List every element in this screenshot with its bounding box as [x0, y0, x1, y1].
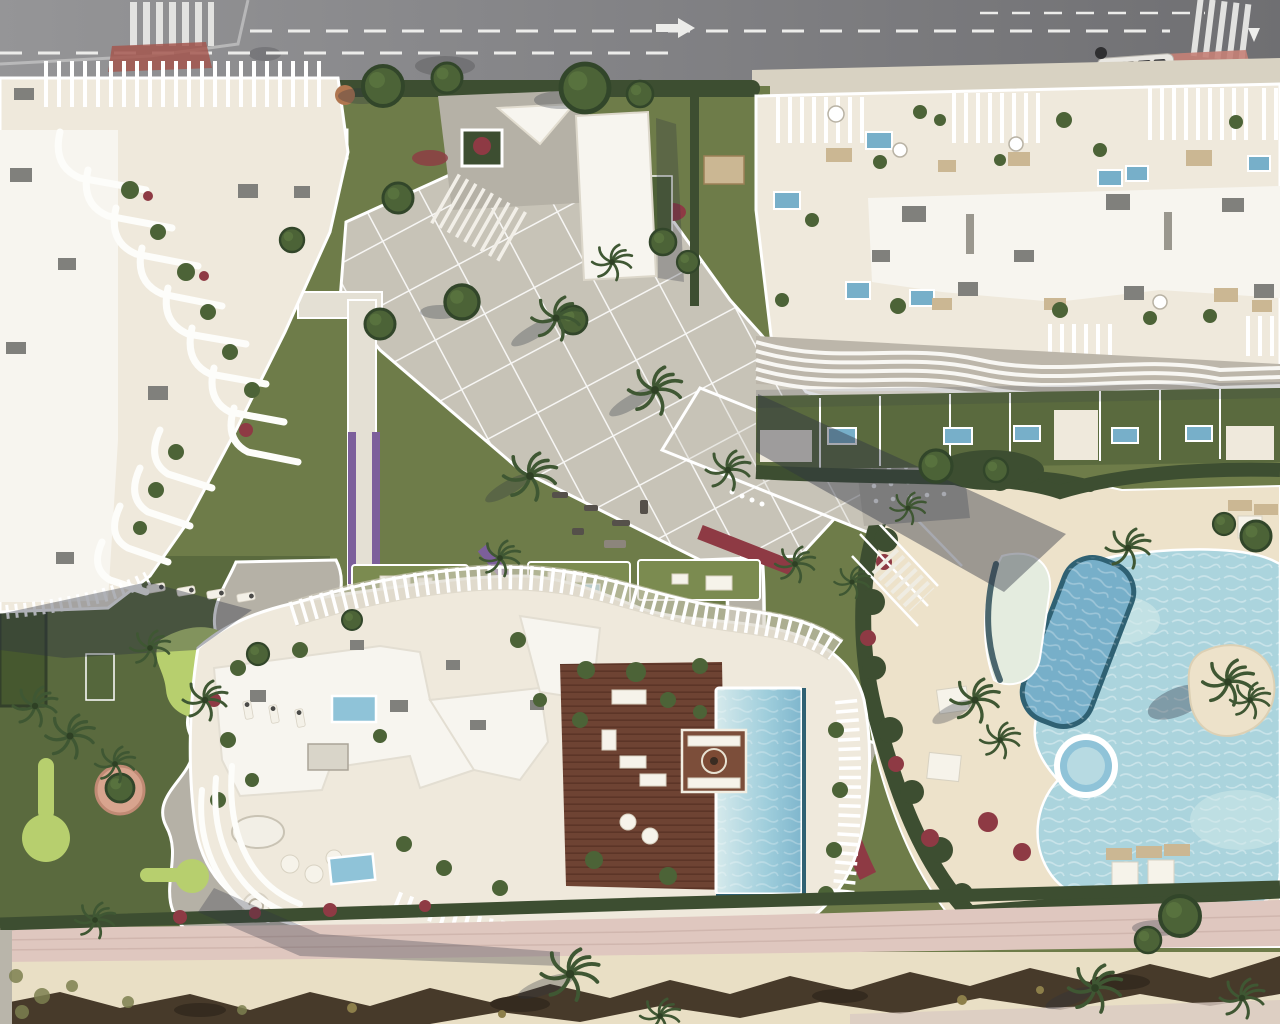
cabana [927, 752, 962, 781]
terrace-plunge-pool [329, 854, 375, 884]
garden-storage [86, 654, 114, 700]
scene-svg [0, 0, 1280, 1024]
pedestrian [1095, 47, 1107, 59]
round-chair [305, 865, 323, 883]
putting-green-circle [22, 814, 70, 862]
hedge-divider [690, 96, 699, 306]
garden-patio [1054, 410, 1098, 460]
jacuzzi-water [1067, 747, 1105, 785]
long-wood-table [704, 156, 744, 184]
putting-green-stem [38, 758, 54, 820]
garden-patio [1226, 426, 1274, 460]
palm-island [1189, 645, 1275, 736]
left-flat-roof [0, 130, 118, 602]
terrace-plunge-pool [332, 696, 376, 722]
aerial-render [0, 0, 1280, 1024]
round-chair [281, 855, 299, 873]
building-bottom [190, 567, 869, 951]
dining-table [308, 744, 348, 770]
planter-flowers [473, 137, 491, 155]
putting-green-circle [175, 859, 209, 893]
tr-white-roof-band [868, 186, 1280, 302]
fire-pit-lounge [682, 730, 746, 792]
flowerbed [412, 150, 448, 166]
